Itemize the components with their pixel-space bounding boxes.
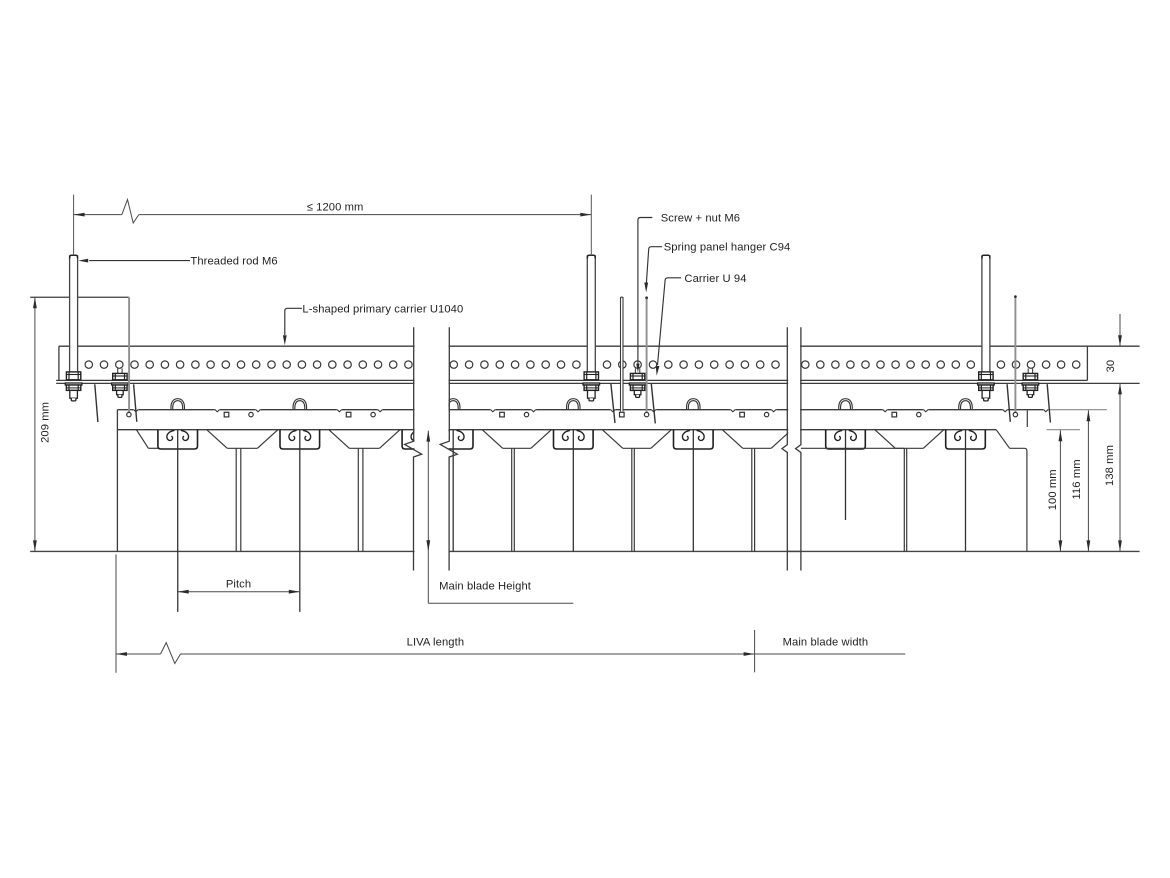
svg-text:Threaded rod M6: Threaded rod M6 [190,256,277,268]
svg-text:L-shaped primary carrier U1040: L-shaped primary carrier U1040 [302,303,463,315]
svg-text:116 mm: 116 mm [1071,459,1083,499]
svg-text:209 mm: 209 mm [39,402,51,443]
svg-text:Carrier U 94: Carrier U 94 [684,273,746,285]
svg-text:Pitch: Pitch [226,578,251,590]
svg-text:Screw + nut M6: Screw + nut M6 [661,213,740,225]
svg-text:≤ 1200 mm: ≤ 1200 mm [307,201,364,213]
svg-text:100 mm: 100 mm [1047,469,1059,510]
svg-text:LIVA length: LIVA length [407,637,465,649]
svg-text:30: 30 [1105,360,1117,373]
svg-text:138 mm: 138 mm [1104,445,1116,486]
svg-text:Main blade width: Main blade width [783,636,869,648]
svg-text:Main blade Height: Main blade Height [439,581,532,593]
svg-text:Spring panel hanger C94: Spring panel hanger C94 [664,242,791,254]
